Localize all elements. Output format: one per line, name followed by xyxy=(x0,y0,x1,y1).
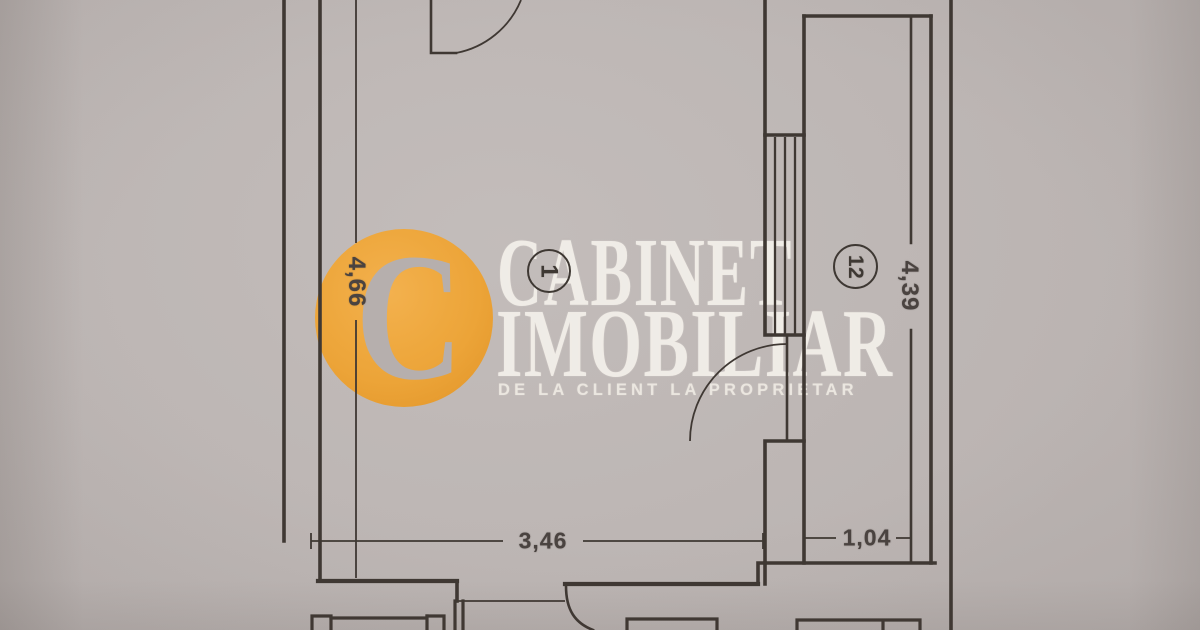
top-door-leaf xyxy=(431,0,456,53)
room-number-12: 12 xyxy=(843,254,867,278)
floorplan-photo: C CABINET IMOBILIAR DE LA CLIENT LA PROP… xyxy=(0,0,1200,630)
bottom-window-sill-1 xyxy=(331,616,427,630)
dim-label-4-39: 4,39 xyxy=(895,261,923,312)
room-number-circle-12: 12 xyxy=(833,244,878,289)
floorplan-linework xyxy=(0,0,1200,630)
bottom-window-sill-2 xyxy=(627,619,717,630)
bottom-wall-pier-1 xyxy=(312,616,331,630)
dim-label-3-46: 3,46 xyxy=(519,528,568,555)
dim-label-4-66: 4,66 xyxy=(342,257,370,308)
balcony-door-swing-arc xyxy=(690,344,787,441)
entry-door-swing-arc xyxy=(566,586,593,630)
room-number-circle-1: 1 xyxy=(527,249,571,293)
bottom-window-sill-3 xyxy=(797,620,920,630)
hatched-window-band xyxy=(775,137,795,334)
room-number-1: 1 xyxy=(535,264,563,277)
bottom-wall-pier-2 xyxy=(427,616,444,630)
top-door-swing-arc xyxy=(456,0,521,53)
dim-label-1-04: 1,04 xyxy=(843,525,892,552)
bottom-wall-pier-3 xyxy=(455,601,463,630)
